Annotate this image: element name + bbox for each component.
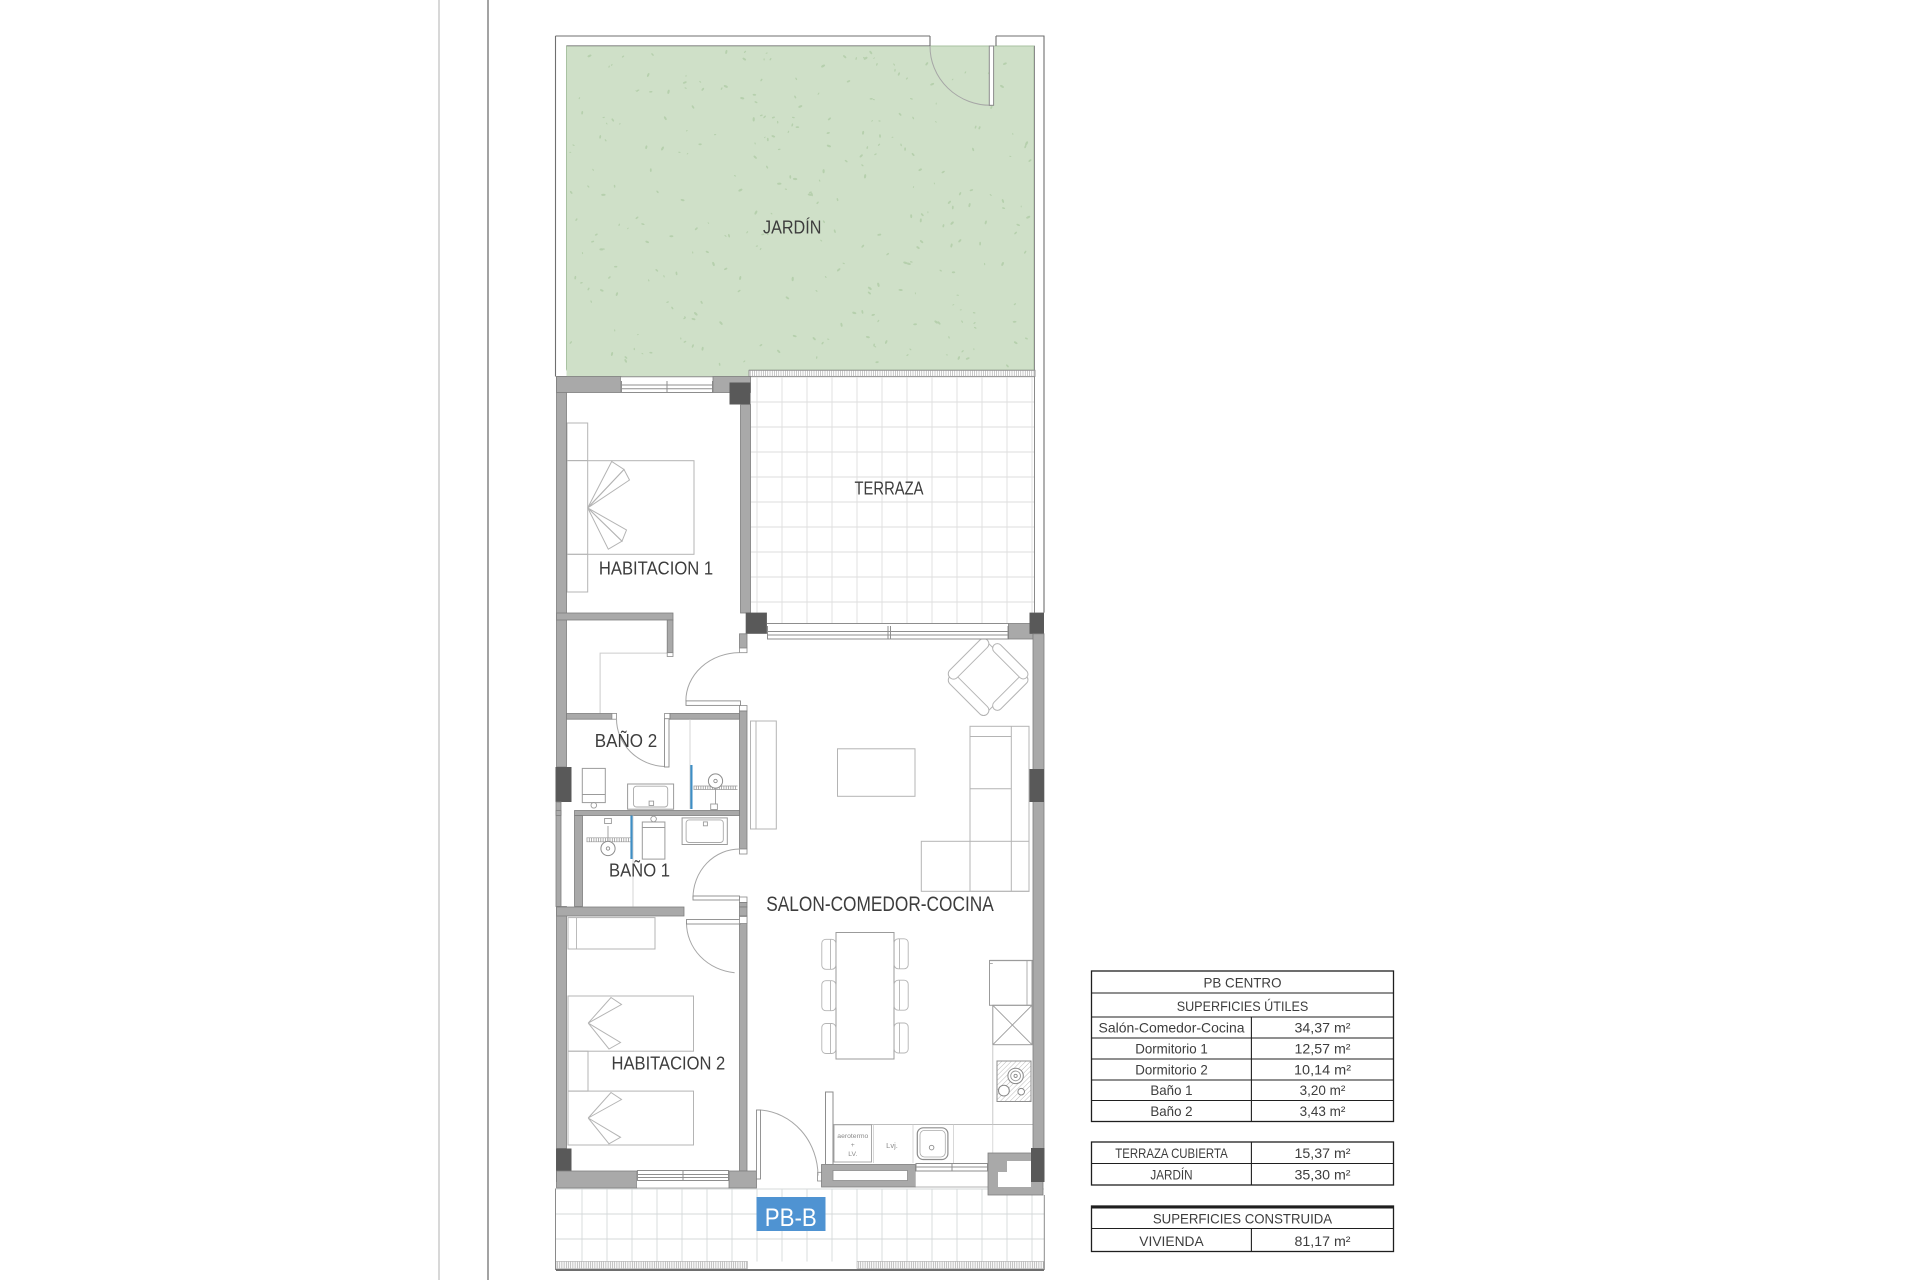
svg-text:15,37 m²: 15,37 m² bbox=[1295, 1145, 1351, 1161]
svg-text:SUPERFICIES ÚTILES: SUPERFICIES ÚTILES bbox=[1177, 998, 1309, 1014]
svg-text:JARDÍN: JARDÍN bbox=[763, 217, 821, 238]
svg-text:81,17 m²: 81,17 m² bbox=[1295, 1233, 1351, 1249]
svg-text:PB-B: PB-B bbox=[765, 1204, 817, 1232]
svg-text:BAÑO 1: BAÑO 1 bbox=[609, 859, 670, 880]
svg-text:TERRAZA: TERRAZA bbox=[855, 478, 925, 499]
svg-text:SUPERFICIES CONSTRUIDA: SUPERFICIES CONSTRUIDA bbox=[1153, 1210, 1333, 1226]
svg-text:3,43 m²: 3,43 m² bbox=[1300, 1103, 1346, 1119]
svg-text:HABITACION 1: HABITACION 1 bbox=[599, 557, 713, 578]
svg-text:JARDÍN: JARDÍN bbox=[1150, 1167, 1192, 1183]
svg-text:Lvj.: Lvj. bbox=[886, 1141, 898, 1150]
svg-text:3,20 m²: 3,20 m² bbox=[1300, 1082, 1346, 1098]
svg-text:VIVIENDA: VIVIENDA bbox=[1139, 1233, 1204, 1249]
svg-text:Salón-Comedor-Cocina: Salón-Comedor-Cocina bbox=[1099, 1019, 1245, 1035]
svg-text:Dormitorio 2: Dormitorio 2 bbox=[1135, 1061, 1208, 1077]
svg-text:aerotermo: aerotermo bbox=[837, 1133, 868, 1140]
svg-text:PB CENTRO: PB CENTRO bbox=[1204, 974, 1282, 990]
svg-text:Baño 1: Baño 1 bbox=[1150, 1082, 1192, 1098]
svg-text:10,14 m²: 10,14 m² bbox=[1294, 1061, 1351, 1077]
svg-text:HABITACION 2: HABITACION 2 bbox=[612, 1052, 726, 1073]
svg-text:BAÑO 2: BAÑO 2 bbox=[595, 730, 657, 751]
svg-text:35,30 m²: 35,30 m² bbox=[1295, 1167, 1351, 1183]
svg-text:+: + bbox=[851, 1142, 855, 1149]
svg-text:Dormitorio 1: Dormitorio 1 bbox=[1135, 1040, 1208, 1056]
svg-text:34,37 m²: 34,37 m² bbox=[1295, 1019, 1351, 1035]
svg-text:SALON-COMEDOR-COCINA: SALON-COMEDOR-COCINA bbox=[766, 893, 994, 916]
svg-text:12,57 m²: 12,57 m² bbox=[1295, 1040, 1351, 1056]
svg-text:LV.: LV. bbox=[848, 1151, 857, 1158]
svg-text:TERRAZA CUBIERTA: TERRAZA CUBIERTA bbox=[1115, 1145, 1228, 1161]
svg-text:Baño 2: Baño 2 bbox=[1150, 1103, 1192, 1119]
